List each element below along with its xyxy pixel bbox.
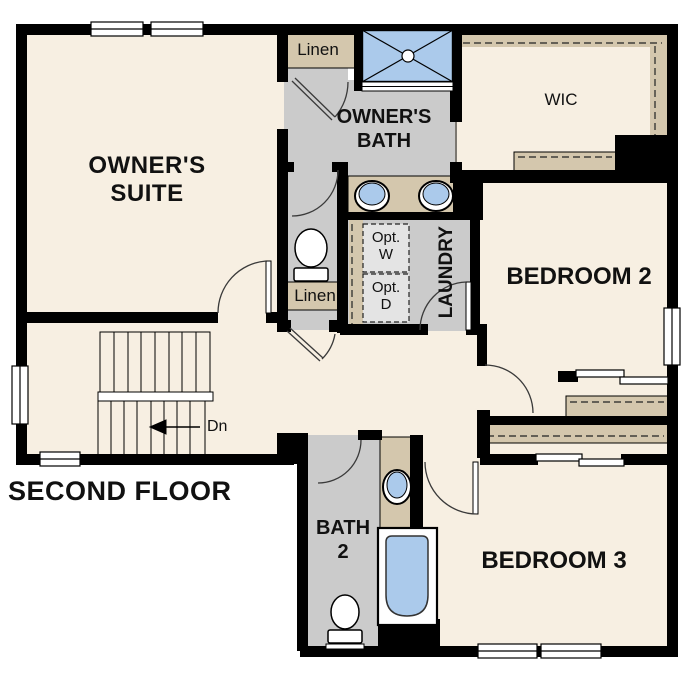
- owners-suite-door-leaf: [266, 261, 271, 313]
- wall-bedroom2-west-stub: [477, 330, 487, 366]
- sink-basin: [387, 472, 407, 498]
- toilet-base: [326, 644, 364, 649]
- wall-bedroom3-closet-a: [480, 454, 538, 465]
- bedroom2-closet-door-2: [620, 377, 668, 384]
- wall-closet-band: [480, 416, 670, 425]
- owners-bath-label: OWNER'S BATH: [314, 106, 454, 153]
- optional-washer-label: Opt. W: [363, 230, 409, 263]
- sink-basin: [423, 183, 449, 205]
- owners-suite-label: OWNER'S SUITE: [57, 152, 237, 209]
- optional-dryer-label: Opt. D: [363, 280, 409, 313]
- wall-linen-bottom-a: [277, 320, 291, 332]
- bedroom3-closet-shelf: [483, 424, 670, 443]
- wall-bath2-top-stub: [358, 430, 382, 440]
- wic-label: WIC: [521, 90, 601, 110]
- bedroom3-closet-door-1: [536, 454, 582, 461]
- wall-suite-bottom-a: [16, 312, 218, 323]
- toilet-tank: [328, 630, 362, 643]
- bedroom3-label: BEDROOM 3: [454, 547, 654, 575]
- bedroom3-door-leaf: [473, 462, 478, 514]
- bathtub-icon: [386, 536, 428, 616]
- wall-bath2-mid: [410, 435, 423, 530]
- wall-bedroom3-closet-b: [621, 454, 670, 465]
- wall-wc-right: [337, 162, 348, 333]
- shower-drain: [402, 50, 414, 62]
- stairs-down: [98, 332, 213, 455]
- sink-basin: [359, 183, 385, 205]
- linen-lower-label: Linen: [280, 286, 350, 306]
- laundry-counter: [349, 219, 363, 331]
- wic-shelf-bottom: [514, 152, 618, 172]
- wic-shelf-right: [650, 40, 668, 140]
- toilet-icon: [331, 595, 359, 629]
- bedroom2-closet-door-1: [576, 370, 624, 377]
- stairs-down-label: Dn: [207, 418, 251, 437]
- shower-stall: [362, 30, 453, 91]
- laundry-door-leaf: [466, 282, 471, 330]
- wall-wc-divider-a: [284, 162, 294, 172]
- wall-wic-corner-block: [615, 135, 678, 172]
- linen-upper-label: Linen: [283, 40, 353, 60]
- laundry-label: LAUNDRY: [436, 217, 458, 327]
- toilet-icon: [295, 229, 327, 267]
- bedroom3-closet-door-2: [579, 459, 624, 466]
- floor-title: SECOND FLOOR: [8, 476, 288, 508]
- bedroom2-label: BEDROOM 2: [479, 263, 679, 291]
- bath2-label: BATH 2: [303, 517, 383, 564]
- wall-laundry-bottom-a: [340, 324, 428, 335]
- toilet-tank: [294, 268, 328, 281]
- bedroom2-closet-shelf: [566, 396, 670, 417]
- stair-landing-rail: [98, 392, 213, 401]
- second-floor-plan: OWNER'S SUITE OWNER'S BATH WIC BEDROOM 2…: [0, 0, 687, 687]
- wall-bedroom2-closet-stub: [558, 371, 578, 382]
